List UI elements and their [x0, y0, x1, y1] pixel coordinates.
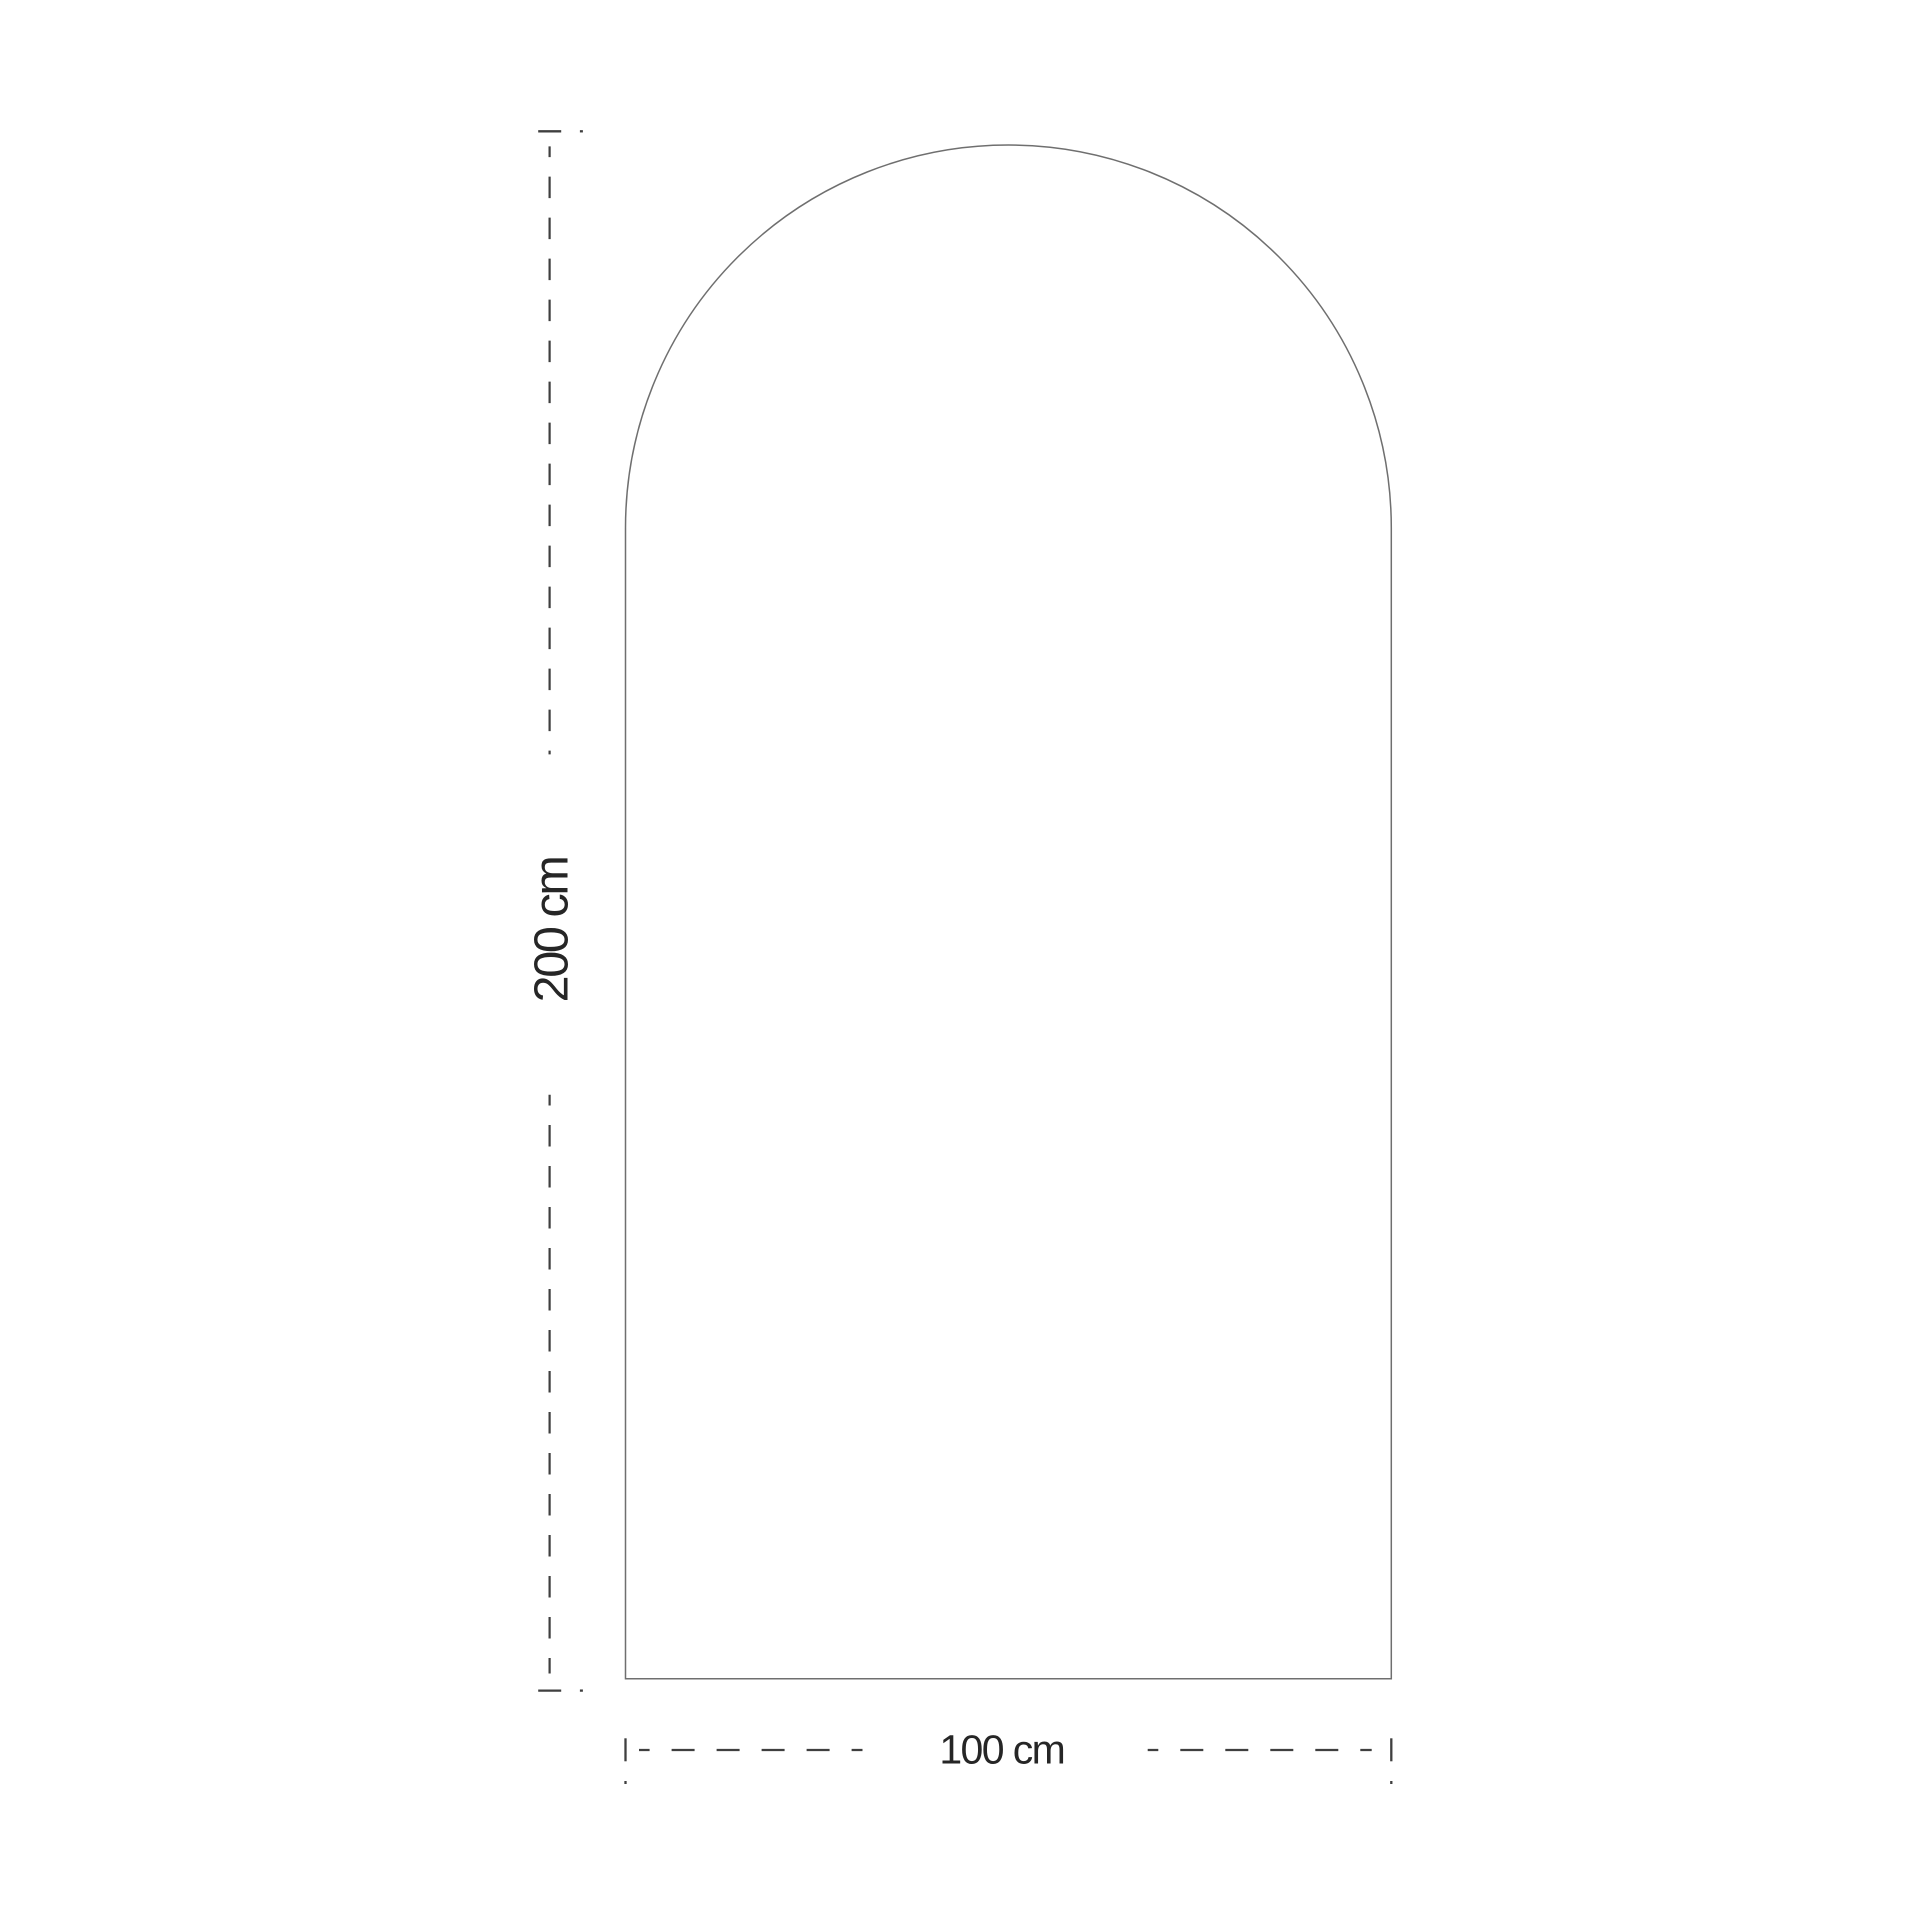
svg-text:200 cm: 200 cm: [525, 858, 579, 1003]
svg-text:100 cm: 100 cm: [939, 1727, 1064, 1773]
